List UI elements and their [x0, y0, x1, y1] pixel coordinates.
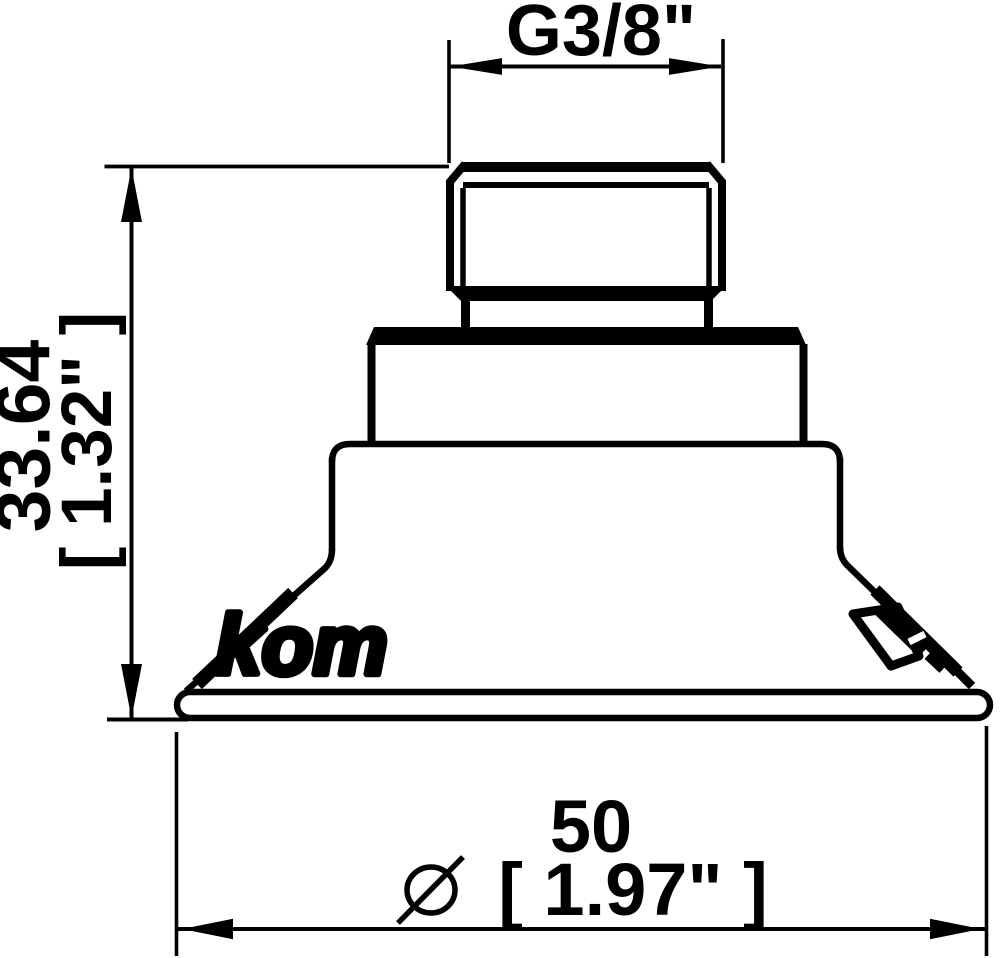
- svg-text:G3/8": G3/8": [506, 0, 696, 71]
- svg-text:[ 1.97" ]: [ 1.97" ]: [498, 848, 768, 931]
- svg-text:[ 1.32" ]: [ 1.32" ]: [48, 312, 127, 571]
